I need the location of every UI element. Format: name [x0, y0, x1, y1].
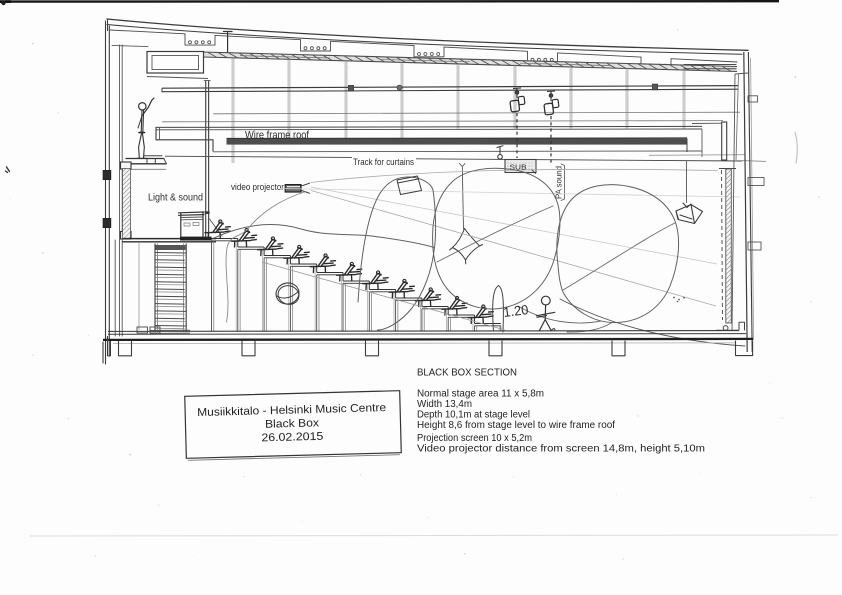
- svg-text:Wire frame roof: Wire frame roof: [245, 129, 310, 141]
- svg-text:video projector: video projector: [231, 182, 284, 193]
- svg-text:1.20: 1.20: [503, 302, 530, 320]
- svg-text:Projection screen 10 x 5,2m: Projection screen 10 x 5,2m: [417, 433, 532, 444]
- svg-text:Video projector distance from: Video projector distance from screen 14,…: [417, 444, 705, 455]
- svg-text:Normal stage area 11 x 5,8m: Normal stage area 11 x 5,8m: [417, 389, 544, 400]
- svg-text:Depth 10,1m at stage level: Depth 10,1m at stage level: [417, 410, 530, 421]
- svg-text:Track for curtains: Track for curtains: [353, 157, 414, 168]
- svg-text:Black Box: Black Box: [265, 417, 320, 430]
- svg-text:Light & sound: Light & sound: [148, 193, 203, 204]
- svg-text:26.02.2015: 26.02.2015: [261, 431, 323, 445]
- svg-text:BLACK BOX SECTION: BLACK BOX SECTION: [417, 367, 517, 379]
- svg-text:Width 13,4m: Width 13,4m: [417, 399, 472, 410]
- svg-text:Height 8,6 from stage level to: Height 8,6 from stage level to wire fram…: [417, 420, 615, 431]
